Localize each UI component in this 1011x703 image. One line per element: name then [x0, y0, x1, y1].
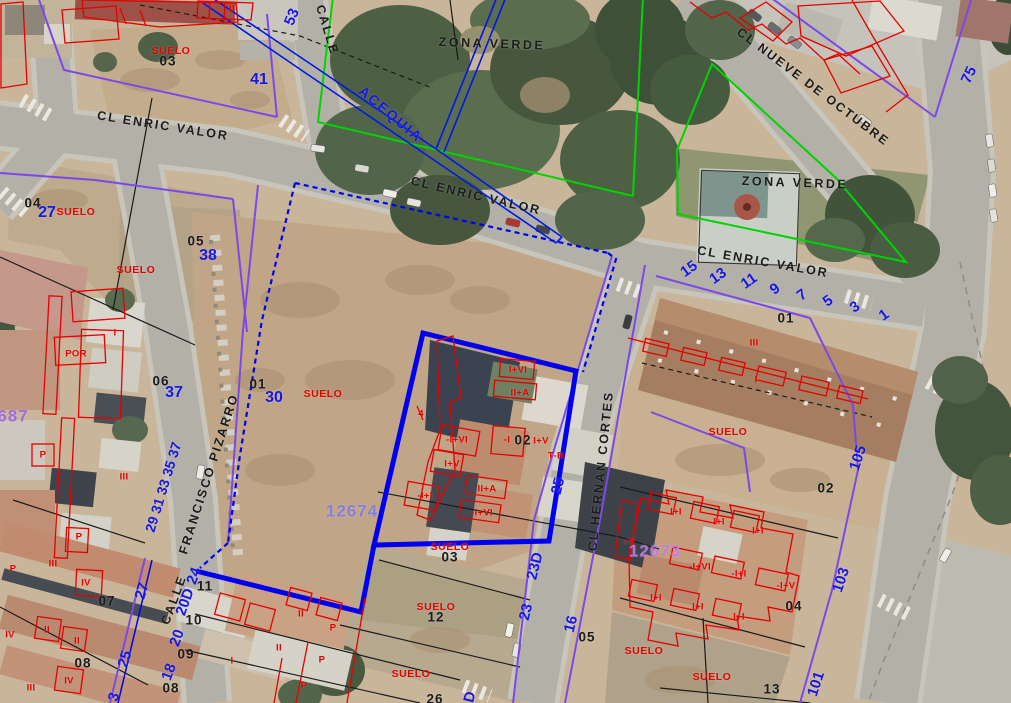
house-number-label: 16 — [562, 614, 581, 634]
construction-label: 4 — [418, 409, 424, 419]
suelo-label: SUELO — [392, 669, 431, 680]
suelo-label: SUELO — [57, 207, 96, 218]
construction-label: I+V — [533, 436, 548, 446]
construction-label: P — [319, 655, 326, 665]
construction-label: IV — [81, 578, 91, 588]
construction-label: I+I — [692, 602, 704, 612]
house-number-label: 75 — [959, 64, 980, 85]
green-zone-label: ZONA VERDE — [439, 36, 546, 52]
house-number-label: 25 — [549, 476, 568, 496]
house-number-label: 27 — [38, 205, 56, 221]
construction-label: I+I — [733, 612, 745, 622]
house-number-label: 41 — [250, 72, 268, 88]
parcel-id-label: 12674 — [326, 503, 378, 520]
parcel-number-label: 26 — [426, 692, 443, 703]
green-zone-label: ZONA VERDE — [742, 175, 849, 191]
construction-label: -I+I — [417, 491, 432, 501]
construction-label: II — [74, 636, 80, 646]
house-number-label: 3 — [106, 691, 123, 703]
house-number-label: 38 — [199, 248, 217, 264]
house-number-label: D — [461, 690, 478, 703]
suelo-label: SUELO — [417, 602, 456, 613]
house-number-label: 101 — [805, 670, 827, 698]
construction-label: -I — [504, 435, 510, 445]
suelo-label: SUELO — [152, 46, 191, 57]
house-number-label: 105 — [847, 444, 869, 472]
house-number-label: 7 — [794, 286, 809, 303]
house-number-label: 30 — [265, 390, 283, 406]
cadastral-map-viewport[interactable]: CALLECL ENRIC VALORCL ENRIC VALORCL ENRI… — [0, 0, 1011, 703]
street-name-label: CL HERNAN CORTES — [586, 390, 615, 551]
house-number-label: 3 — [847, 298, 862, 315]
construction-label: I+V — [444, 459, 459, 469]
construction-label: I — [231, 656, 234, 666]
construction-label: II — [229, 4, 235, 14]
street-name-label: CL ENRIC VALOR — [96, 109, 229, 142]
house-number-label: 9 — [767, 280, 782, 297]
parcel-number-label: 04 — [785, 599, 802, 613]
construction-label: I+VI — [509, 365, 527, 375]
parcel-number-label: 08 — [162, 681, 179, 695]
construction-label: I — [755, 375, 758, 385]
construction-label: I+I — [650, 593, 662, 603]
construction-label: -I+VI — [471, 508, 493, 518]
suelo-label: SUELO — [709, 427, 748, 438]
parcel-number-label: 02 — [817, 481, 834, 495]
construction-label: III — [120, 472, 129, 482]
suelo-label: SUELO — [625, 646, 664, 657]
house-number-label: 53 — [282, 6, 302, 27]
construction-label: P — [76, 532, 83, 542]
suelo-label: SUELO — [693, 672, 732, 683]
house-number-label: 11 — [738, 270, 760, 291]
construction-label: II — [44, 625, 50, 635]
construction-label: I+I — [713, 517, 725, 527]
construction-label: -I+V — [777, 581, 796, 591]
parcel-number-label: 07 — [98, 594, 115, 608]
construction-label: III — [27, 683, 36, 693]
parcel-number-label: 08 — [74, 656, 91, 670]
construction-label: III — [49, 559, 58, 569]
parcel-number-label: 13 — [763, 682, 780, 696]
acequia-label: ACEQUIA — [356, 83, 425, 144]
construction-label: III — [750, 338, 759, 348]
house-number-label: 1 — [876, 306, 891, 323]
construction-label: T-B — [548, 451, 564, 461]
construction-label: +V — [623, 537, 635, 547]
parcel-number-label: 01 — [777, 311, 794, 325]
construction-label: P — [330, 623, 337, 633]
house-number-label: 15 — [678, 258, 700, 280]
parcel-number-label: 05 — [578, 630, 595, 644]
street-name-label: FRANCISCO PIZARRO — [177, 392, 241, 556]
house-number-label: 27 — [132, 581, 151, 601]
construction-label: P — [301, 681, 308, 691]
suelo-label: SUELO — [304, 389, 343, 400]
construction-label: I — [114, 328, 117, 338]
house-number-label: 103 — [830, 566, 852, 594]
suelo-label: SUELO — [117, 265, 156, 276]
street-name-label: CL ENRIC VALOR — [410, 175, 543, 217]
construction-label: -I+I — [731, 569, 746, 579]
house-number-label: 13 — [707, 265, 729, 287]
construction-label: -I+VI — [689, 562, 711, 572]
parcel-id-label: 687 — [0, 408, 29, 425]
label-layer: CALLECL ENRIC VALORCL ENRIC VALORCL ENRI… — [0, 0, 1011, 703]
parcel-number-label: 01 — [249, 377, 266, 391]
construction-label: II — [298, 609, 304, 619]
house-number-label: 29 31 33 35 37 — [143, 440, 184, 533]
parcel-number-label: 02 — [514, 433, 531, 447]
construction-label: I+I — [670, 507, 682, 517]
street-name-label: CL NUEVE DE OCTUBRE — [735, 26, 892, 149]
construction-label: II — [276, 643, 282, 653]
construction-label: IV — [5, 630, 15, 640]
construction-label: I+I — [752, 526, 764, 536]
house-number-label: 25 — [115, 649, 134, 669]
house-number-label: 23 — [517, 602, 536, 622]
construction-label: -I+VI — [446, 435, 468, 445]
construction-label: IV — [64, 676, 74, 686]
house-number-label: 37 — [165, 385, 183, 401]
construction-label: II+A — [478, 484, 497, 494]
construction-label: POR — [65, 349, 87, 359]
parcel-number-label: 09 — [177, 647, 194, 661]
parcel-number-label: 05 — [187, 234, 204, 248]
suelo-label: SUELO — [431, 542, 470, 553]
construction-label: P — [40, 450, 47, 460]
street-name-label: CALLE — [313, 3, 340, 56]
parcel-id-label: 12673 — [629, 543, 681, 560]
construction-label: II+A — [511, 388, 530, 398]
construction-label: P — [10, 564, 17, 574]
house-number-label: 5 — [820, 292, 835, 309]
house-number-label: 23D — [524, 551, 545, 581]
